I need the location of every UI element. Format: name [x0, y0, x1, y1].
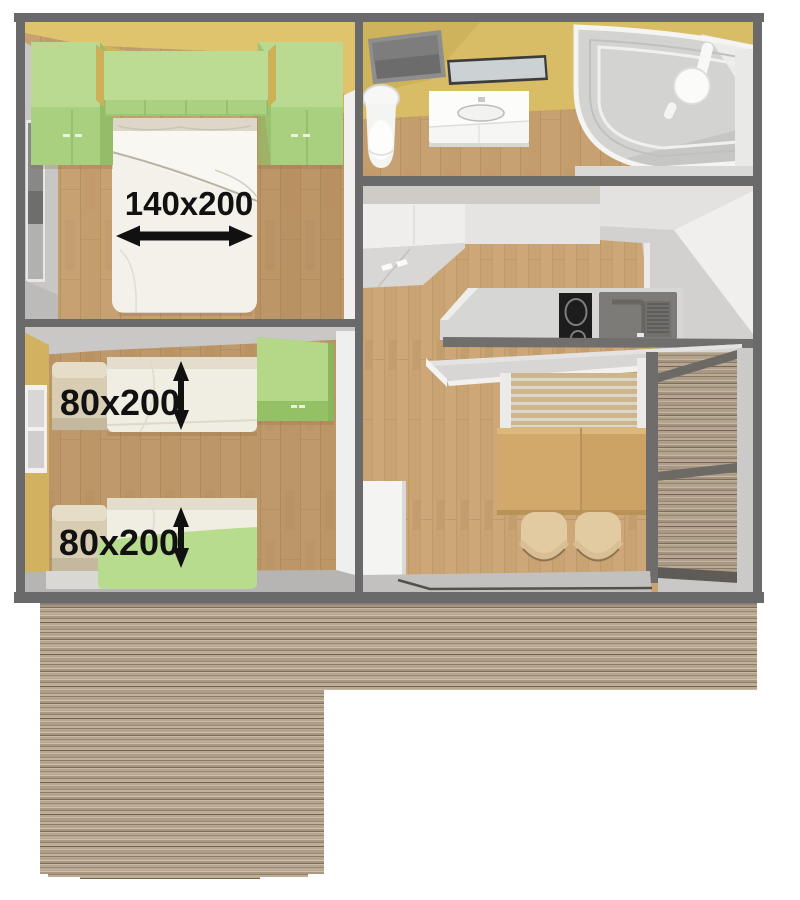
svg-text:80x200: 80x200 — [60, 382, 180, 423]
svg-text:140x200: 140x200 — [125, 185, 253, 222]
svg-text:80x200: 80x200 — [59, 522, 179, 563]
